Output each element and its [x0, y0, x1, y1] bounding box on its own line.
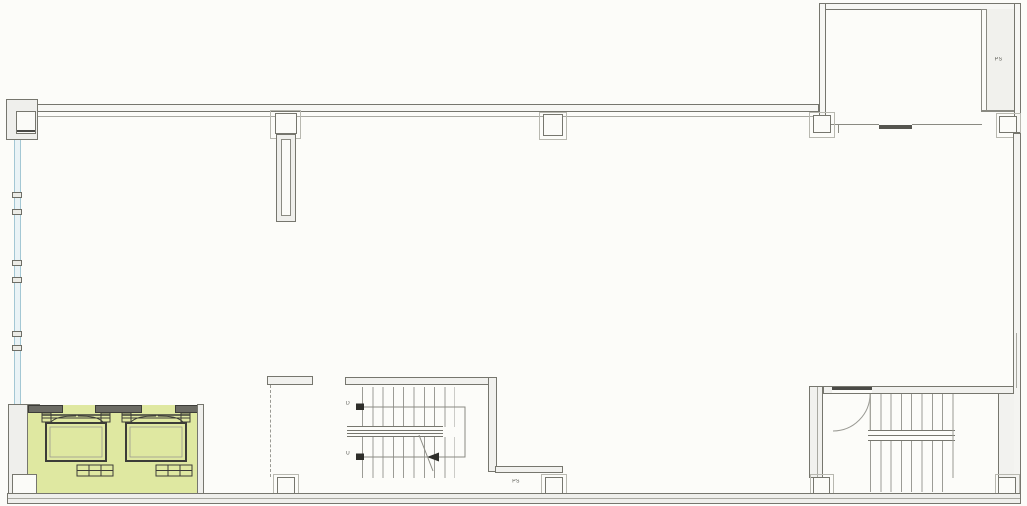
right-stair-door: [833, 394, 870, 431]
elevator-counterweight-2: [156, 465, 192, 476]
stair-down-marker: [356, 404, 364, 411]
walking-line-break: [419, 435, 433, 471]
elevator-counterweight-1: [77, 465, 113, 476]
stair-up-marker: [356, 454, 364, 461]
elevator-car-2: [122, 413, 190, 461]
floor-plan-canvas: PS D U PS: [0, 0, 1027, 506]
central-stair-walking-line: [356, 404, 465, 472]
detail-overlay: [0, 0, 1027, 506]
elevator-car-1: [42, 413, 110, 461]
